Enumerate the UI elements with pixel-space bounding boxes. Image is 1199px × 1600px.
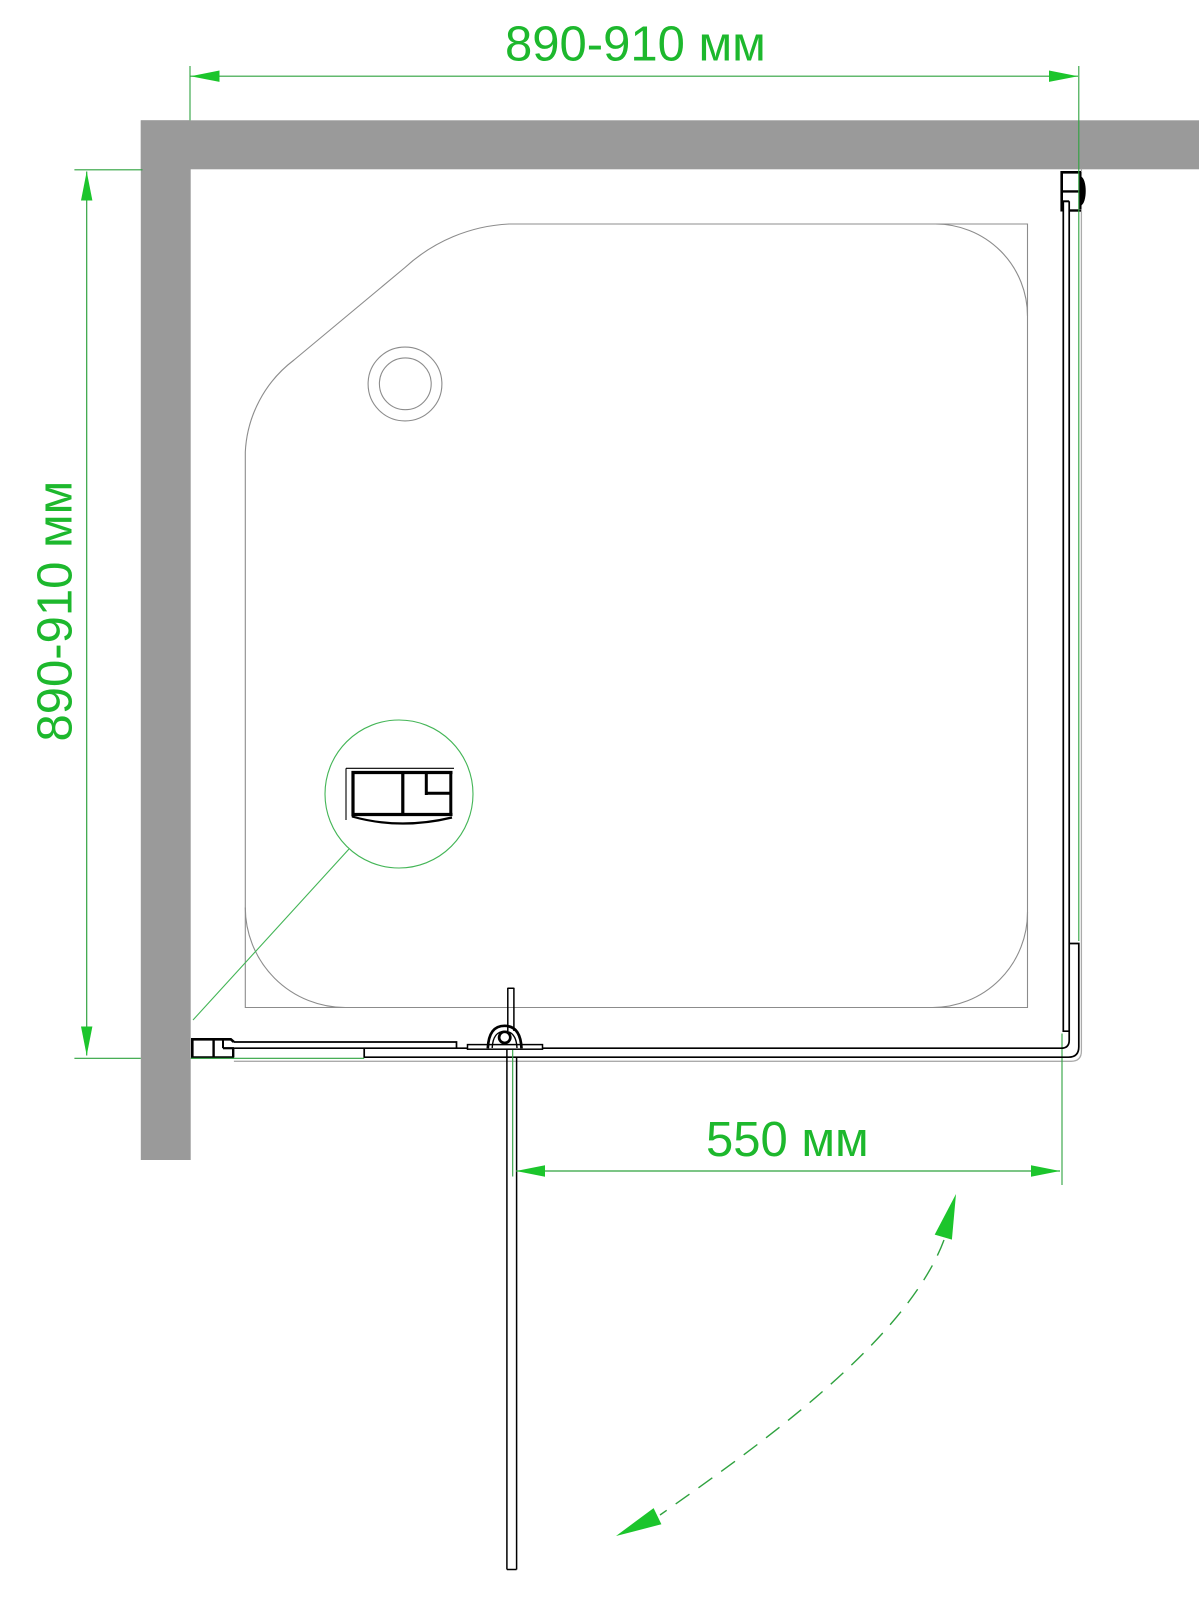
svg-text:550 мм: 550 мм xyxy=(706,1113,869,1167)
svg-text:890-910 мм: 890-910 мм xyxy=(29,481,83,742)
svg-text:890-910 мм: 890-910 мм xyxy=(505,18,766,72)
